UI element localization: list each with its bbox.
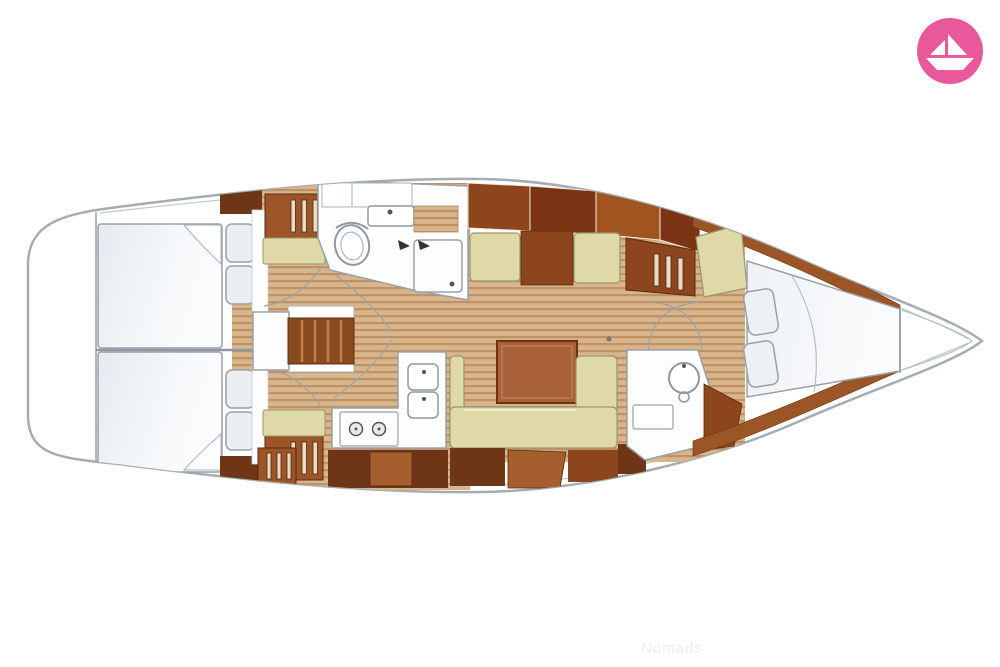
locker-wood xyxy=(468,183,530,231)
faucet-icon xyxy=(422,370,426,374)
vanity-counter xyxy=(633,405,673,429)
pillow xyxy=(226,412,254,450)
faucet-icon xyxy=(682,364,686,368)
yacht-floor-plan: Nomads xyxy=(0,0,1000,667)
seat-cushion xyxy=(263,238,325,264)
cabinet-wood xyxy=(450,448,505,486)
yacht-floor-plan-page: Nomads xyxy=(0,0,1000,667)
drain-icon xyxy=(450,282,455,287)
brand-logo xyxy=(917,18,983,84)
saloon-table xyxy=(497,341,577,403)
locker-wood xyxy=(521,231,573,285)
stove xyxy=(340,412,398,446)
hanging-locker xyxy=(265,194,323,238)
sink-basin xyxy=(408,392,438,418)
pillow xyxy=(226,224,254,262)
hatch-step xyxy=(288,306,354,318)
pillow xyxy=(226,370,254,408)
watermark-text: Nomads xyxy=(641,640,703,657)
engine-box xyxy=(253,312,289,370)
pillow xyxy=(743,288,780,336)
locker-wood xyxy=(530,186,596,234)
cabinet-wood xyxy=(220,184,262,214)
settee-cushion xyxy=(470,233,520,281)
settee-cushion xyxy=(574,233,620,283)
cabinet-door xyxy=(508,450,566,488)
faucet-icon xyxy=(388,210,393,215)
sink-basin xyxy=(408,364,438,390)
sink-basin xyxy=(368,206,414,226)
pillow xyxy=(226,266,254,304)
seat-cushion xyxy=(696,224,747,297)
companionway xyxy=(253,306,354,372)
companionway-stairs xyxy=(288,318,354,364)
vanity-counter xyxy=(322,183,412,207)
pillow xyxy=(743,340,780,388)
seat-cushion xyxy=(263,410,325,436)
cabinet-wood xyxy=(568,450,618,482)
cabinet-door xyxy=(370,452,412,486)
hanging-locker xyxy=(258,448,296,484)
settee-seat xyxy=(450,407,617,448)
faucet-icon xyxy=(422,397,426,401)
mast-post xyxy=(607,337,612,342)
wood-shelf xyxy=(414,206,458,232)
